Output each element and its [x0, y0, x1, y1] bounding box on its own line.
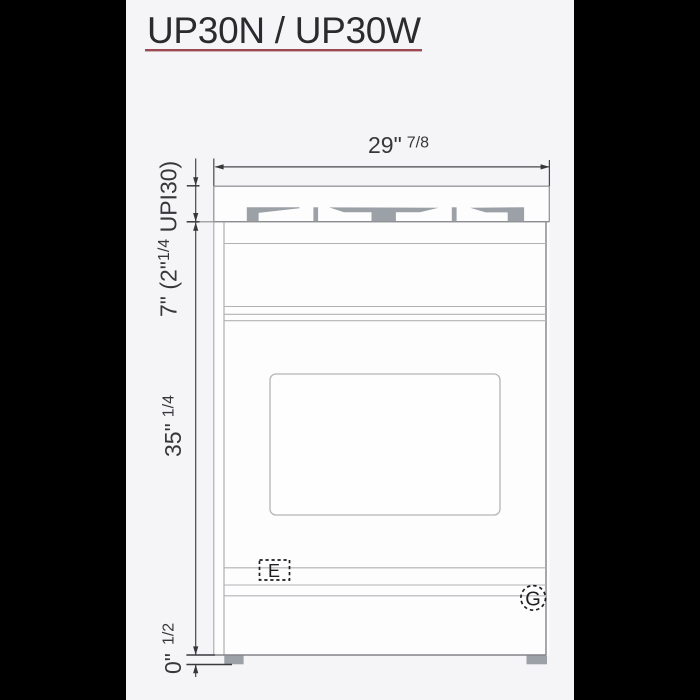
- svg-text:7" (2"1/4 UPI30): 7" (2"1/4 UPI30): [156, 161, 182, 317]
- svg-text:G: G: [525, 589, 541, 611]
- svg-text:UP30N / UP30W: UP30N / UP30W: [147, 10, 421, 51]
- svg-text:E: E: [268, 561, 280, 581]
